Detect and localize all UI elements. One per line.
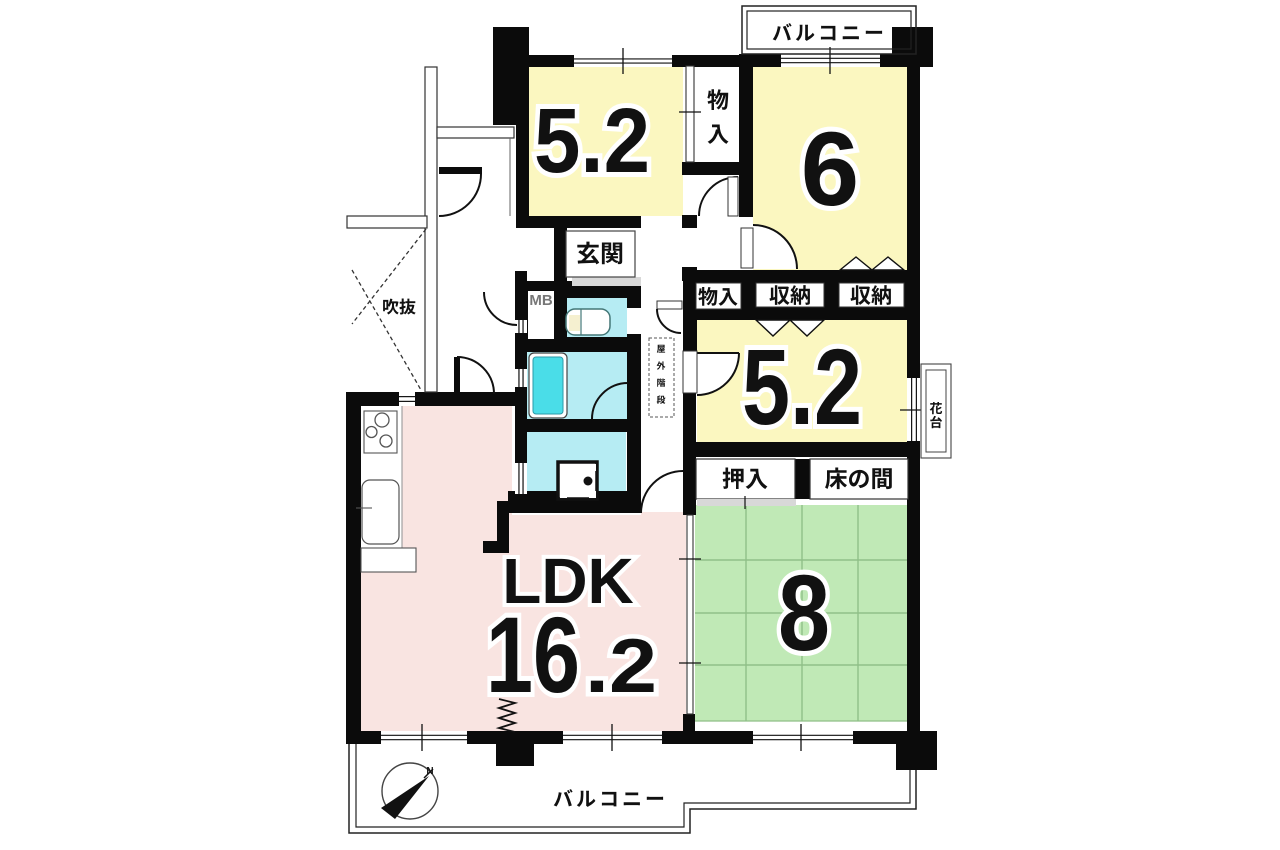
svg-text:5.2: 5.2	[742, 326, 862, 447]
svg-text:16: 16	[486, 594, 580, 715]
svg-text:MB: MB	[529, 292, 552, 309]
svg-text:N: N	[426, 766, 433, 777]
svg-text:6: 6	[801, 111, 859, 228]
svg-text:5.2: 5.2	[534, 90, 650, 192]
svg-text:.2: .2	[585, 624, 657, 709]
svg-text:8: 8	[778, 552, 830, 673]
